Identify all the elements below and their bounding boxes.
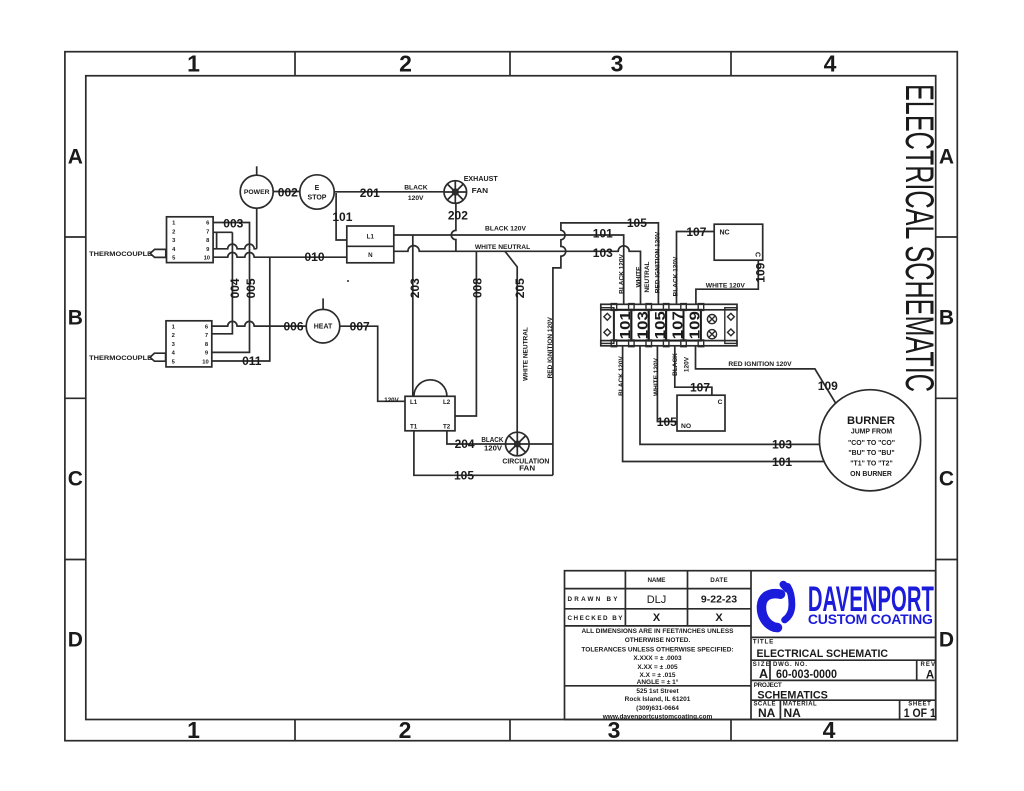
svg-text:A: A xyxy=(759,667,768,681)
svg-text:103: 103 xyxy=(635,311,652,339)
svg-text:7: 7 xyxy=(205,333,208,339)
svg-text:THERMOCOUPLE: THERMOCOUPLE xyxy=(89,251,153,258)
svg-text:E: E xyxy=(315,185,320,192)
svg-text:103: 103 xyxy=(772,437,792,451)
svg-text:DWG. NO.: DWG. NO. xyxy=(773,662,807,668)
svg-text:"T1" TO "T2": "T1" TO "T2" xyxy=(850,460,892,467)
svg-text:101: 101 xyxy=(332,210,352,224)
svg-text:BLACK 120V: BLACK 120V xyxy=(672,256,679,296)
svg-text:010: 010 xyxy=(304,250,324,264)
svg-text:X.XX = ± .005: X.XX = ± .005 xyxy=(637,664,678,671)
svg-text:3: 3 xyxy=(608,717,621,743)
svg-text:002: 002 xyxy=(278,185,298,199)
svg-text:105: 105 xyxy=(454,468,474,482)
svg-text:THERMOCOUPLE: THERMOCOUPLE xyxy=(89,355,153,362)
svg-text:BLACK 120V: BLACK 120V xyxy=(618,355,625,395)
svg-text:3: 3 xyxy=(611,51,624,77)
svg-text:SHEET: SHEET xyxy=(908,702,931,708)
svg-text:4: 4 xyxy=(824,51,837,77)
svg-text:120V: 120V xyxy=(384,397,399,404)
svg-text:107: 107 xyxy=(690,381,710,395)
svg-text:BLACK: BLACK xyxy=(672,353,679,376)
svg-text:2: 2 xyxy=(399,717,412,743)
svg-text:(309)631-0664: (309)631-0664 xyxy=(636,705,679,712)
svg-text:WHITE 120V: WHITE 120V xyxy=(706,283,746,290)
svg-text:120V: 120V xyxy=(484,443,502,452)
svg-text:X: X xyxy=(715,612,723,624)
svg-text:ELECTRICAL SCHEMATIC: ELECTRICAL SCHEMATIC xyxy=(757,648,889,660)
svg-text:101: 101 xyxy=(617,311,634,339)
svg-text:REV: REV xyxy=(921,662,936,668)
svg-text:008: 008 xyxy=(470,278,484,298)
svg-text:"CO" TO "CO": "CO" TO "CO" xyxy=(848,440,895,447)
svg-text:WHITE NEUTRAL: WHITE NEUTRAL xyxy=(475,244,530,251)
svg-text:4: 4 xyxy=(823,717,836,743)
svg-text:JUMP FROM: JUMP FROM xyxy=(851,428,892,435)
svg-text:109: 109 xyxy=(687,311,704,339)
svg-text:TOLERANCES UNLESS OTHERWISE SP: TOLERANCES UNLESS OTHERWISE SPECIFIED: xyxy=(581,647,733,654)
svg-text:C: C xyxy=(718,399,723,406)
svg-text:203: 203 xyxy=(408,278,422,298)
svg-text:10: 10 xyxy=(202,359,208,365)
svg-text:TITLE: TITLE xyxy=(753,639,774,646)
svg-text:NA: NA xyxy=(758,706,776,720)
svg-text:NEUTRAL: NEUTRAL xyxy=(644,261,651,292)
svg-text:BURNER: BURNER xyxy=(847,415,895,427)
svg-text:DATE: DATE xyxy=(710,577,728,584)
svg-text:EXHAUST: EXHAUST xyxy=(464,174,498,183)
svg-text:109: 109 xyxy=(754,262,768,282)
svg-text:60-003-0000: 60-003-0000 xyxy=(776,669,837,681)
svg-text:201: 201 xyxy=(360,186,380,200)
svg-text:007: 007 xyxy=(350,320,370,334)
svg-text:BLACK 120V: BLACK 120V xyxy=(618,253,625,293)
svg-text:X: X xyxy=(653,612,661,624)
svg-text:RED IGNITION 120V: RED IGNITION 120V xyxy=(547,316,554,378)
svg-text:2: 2 xyxy=(172,333,175,339)
svg-text:HEAT: HEAT xyxy=(314,324,333,331)
svg-text:C: C xyxy=(754,252,761,257)
svg-text:NC: NC xyxy=(720,230,730,237)
svg-text:STOP: STOP xyxy=(308,195,327,202)
svg-text:006: 006 xyxy=(283,319,303,333)
svg-text:OTHERWISE NOTED.: OTHERWISE NOTED. xyxy=(625,637,691,644)
svg-text:D: D xyxy=(939,629,954,652)
svg-text:107: 107 xyxy=(686,225,706,239)
svg-text:ANGLE = ± 1°: ANGLE = ± 1° xyxy=(637,678,679,686)
svg-text:T2: T2 xyxy=(443,424,451,431)
svg-text:N: N xyxy=(368,252,373,259)
svg-text:A: A xyxy=(68,146,83,169)
svg-text:DLJ: DLJ xyxy=(647,594,667,606)
svg-text:003: 003 xyxy=(223,216,243,230)
svg-text:103: 103 xyxy=(593,246,613,260)
svg-text:CUSTOM COATING: CUSTOM COATING xyxy=(808,611,933,627)
svg-text:120V: 120V xyxy=(683,356,690,372)
svg-text:RED IGNITION 120V: RED IGNITION 120V xyxy=(655,231,662,293)
svg-text:www.davenportcustomcoating.com: www.davenportcustomcoating.com xyxy=(602,714,713,721)
svg-text:X.XXX = ± .0003: X.XXX = ± .0003 xyxy=(633,655,682,662)
svg-text:1: 1 xyxy=(187,717,200,743)
svg-text:204: 204 xyxy=(455,437,475,451)
svg-text:SCHEMATICS: SCHEMATICS xyxy=(757,690,828,702)
svg-text:L1: L1 xyxy=(367,234,375,241)
svg-text:WHITE NEUTRAL: WHITE NEUTRAL xyxy=(522,327,529,381)
svg-text:ELECTRICAL SCHEMATIC: ELECTRICAL SCHEMATIC xyxy=(897,84,941,392)
svg-text:FAN: FAN xyxy=(519,464,535,473)
svg-text:107: 107 xyxy=(669,311,686,339)
svg-text:NA: NA xyxy=(784,706,802,720)
svg-text:109: 109 xyxy=(818,379,838,393)
svg-text:105: 105 xyxy=(657,415,677,429)
svg-text:9-22-23: 9-22-23 xyxy=(701,594,737,606)
svg-text:"BU" TO "BU": "BU" TO "BU" xyxy=(848,450,894,457)
svg-text:D: D xyxy=(68,629,83,652)
svg-text:CHECKED BY: CHECKED BY xyxy=(568,615,624,622)
svg-text:105: 105 xyxy=(652,311,669,339)
svg-text:X.X = ± .015: X.X = ± .015 xyxy=(640,672,676,679)
svg-text:1 OF 1: 1 OF 1 xyxy=(904,708,937,720)
svg-text:DRAWN BY: DRAWN BY xyxy=(568,596,619,603)
svg-text:205: 205 xyxy=(513,278,527,298)
svg-text:ON BURNER: ON BURNER xyxy=(850,471,892,478)
svg-text:T1: T1 xyxy=(410,424,418,431)
svg-text:011: 011 xyxy=(242,354,262,368)
svg-text:004: 004 xyxy=(228,278,242,298)
svg-text:120V: 120V xyxy=(408,195,424,202)
svg-text:POWER: POWER xyxy=(244,189,270,196)
svg-text:202: 202 xyxy=(448,209,468,223)
svg-text:WHITE: WHITE xyxy=(636,266,643,288)
svg-text:L1: L1 xyxy=(410,399,418,406)
svg-text:525 1st Street: 525 1st Street xyxy=(636,688,679,695)
svg-text:A: A xyxy=(926,669,934,681)
svg-text:Rock Island, IL 61201: Rock Island, IL 61201 xyxy=(625,696,691,703)
svg-text:ALL DIMENSIONS ARE IN FEET/INC: ALL DIMENSIONS ARE IN FEET/INCHES UNLESS xyxy=(581,628,734,635)
svg-text:101: 101 xyxy=(593,227,613,241)
svg-text:WHITE 120V: WHITE 120V xyxy=(653,357,660,396)
svg-text:7: 7 xyxy=(206,229,209,235)
svg-text:101: 101 xyxy=(772,455,792,469)
svg-text:NAME: NAME xyxy=(648,577,666,584)
svg-text:BLACK 120V: BLACK 120V xyxy=(485,226,526,233)
svg-text:C: C xyxy=(939,468,954,491)
svg-text:005: 005 xyxy=(244,278,258,298)
svg-text:BLACK: BLACK xyxy=(404,185,428,192)
svg-text:10: 10 xyxy=(204,256,210,262)
svg-text:NO: NO xyxy=(681,423,691,430)
svg-text:2: 2 xyxy=(399,51,412,77)
svg-text:PROJECT: PROJECT xyxy=(754,682,782,689)
svg-text:FAN: FAN xyxy=(472,186,489,195)
svg-text:RED IGNITION 120V: RED IGNITION 120V xyxy=(728,361,792,368)
svg-text:L2: L2 xyxy=(443,399,451,406)
svg-text:B: B xyxy=(68,307,83,330)
svg-text:C: C xyxy=(68,468,83,491)
svg-text:1: 1 xyxy=(187,51,200,77)
svg-text:105: 105 xyxy=(627,216,647,230)
svg-text:2: 2 xyxy=(172,229,175,235)
